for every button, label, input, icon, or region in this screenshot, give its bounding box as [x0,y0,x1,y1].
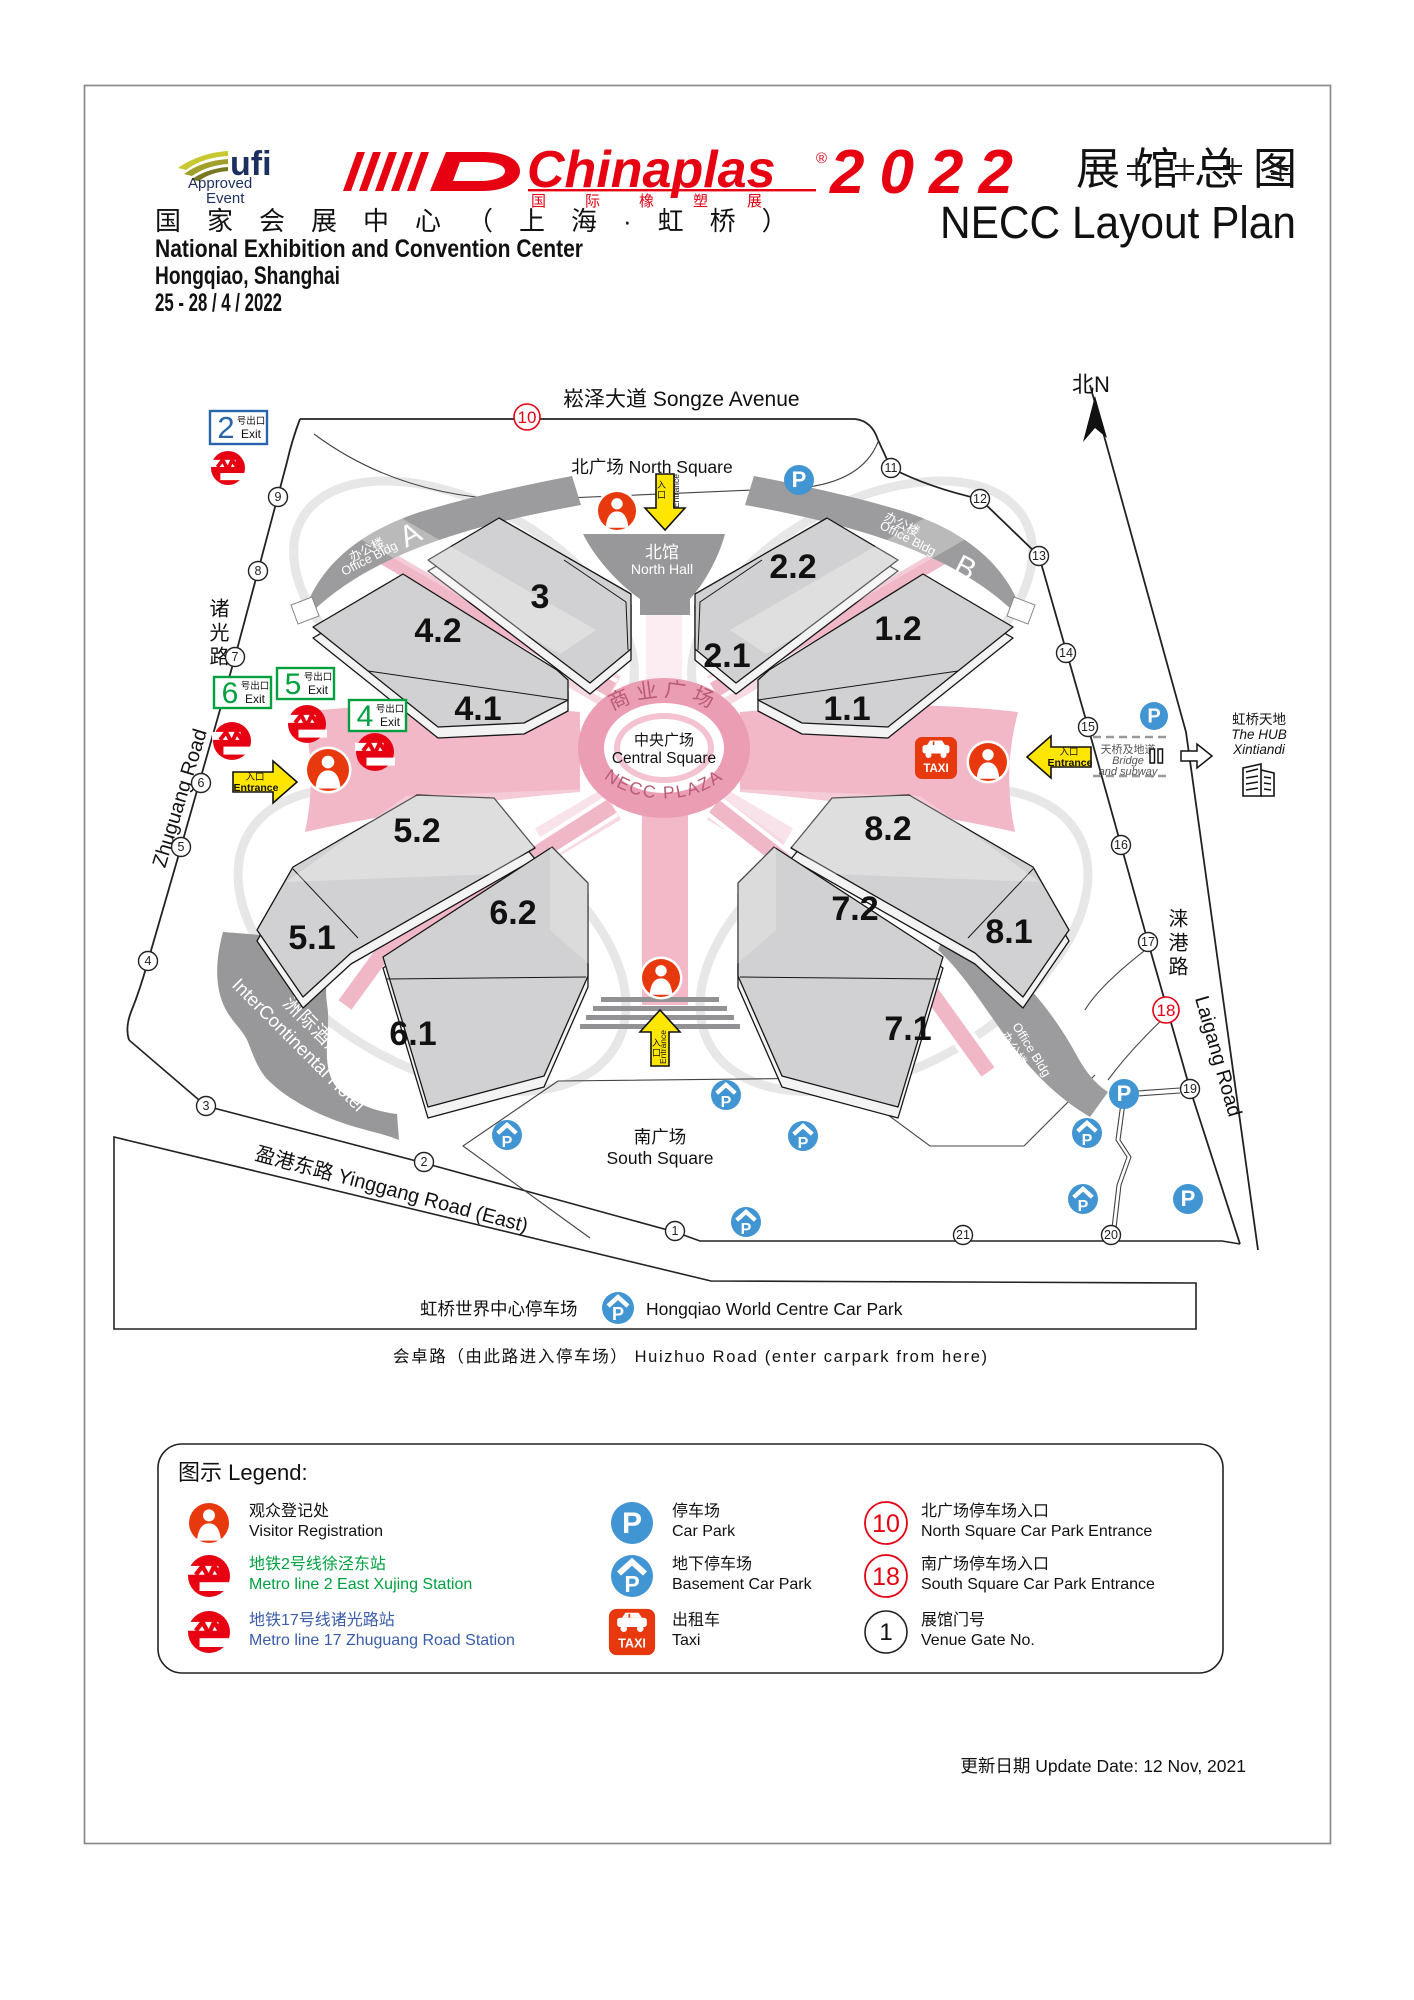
svg-text:4: 4 [145,954,152,968]
svg-text:涞港路: 涞港路 [1165,908,1188,980]
svg-text:Exit: Exit [380,715,401,729]
svg-text:P: P [792,467,807,492]
svg-text:地铁2号线徐泾东站: 地铁2号线徐泾东站 [249,1555,386,1573]
svg-text:5: 5 [178,840,185,854]
svg-text:P: P [612,1304,624,1324]
svg-text:13: 13 [1032,549,1046,563]
svg-text:Basement Car Park: Basement Car Park [672,1576,813,1593]
svg-text:P: P [624,1571,639,1597]
svg-text:入: 入 [657,480,666,490]
svg-text:虹桥世界中心停车场: 虹桥世界中心停车场 [420,1299,578,1319]
svg-text:Venue Gate No.: Venue Gate No. [921,1632,1035,1649]
svg-text:2.2: 2.2 [769,548,816,586]
svg-text:21: 21 [956,1228,970,1242]
svg-text:P: P [1181,1186,1196,1211]
svg-text:图示 Legend:: 图示 Legend: [178,1460,308,1485]
svg-text:6: 6 [198,776,205,790]
svg-text:Central Square: Central Square [612,750,716,767]
svg-text:14: 14 [1059,646,1073,660]
svg-text:Xintiandi: Xintiandi [1232,742,1286,757]
svg-text:地下停车场: 地下停车场 [672,1555,752,1573]
svg-text:北N: 北N [1072,372,1110,397]
svg-text:TAXI: TAXI [923,763,948,775]
svg-text:Event: Event [206,190,245,207]
svg-text:2.1: 2.1 [703,637,750,675]
svg-text:South Square Car Park Entrance: South Square Car Park Entrance [921,1576,1155,1593]
svg-text:号出口: 号出口 [237,415,266,427]
svg-text:NECC Layout Plan: NECC Layout Plan [940,197,1296,248]
svg-text:7: 7 [232,650,239,664]
svg-text:20: 20 [1104,1228,1118,1242]
svg-text:Metro line 17 Zhuguang Road St: Metro line 17 Zhuguang Road Station [249,1632,515,1649]
svg-text:Entrance: Entrance [671,474,681,508]
svg-text:®: ® [816,150,827,167]
svg-text:8.2: 8.2 [864,810,911,848]
svg-text:South Square: South Square [606,1148,713,1168]
svg-text:1: 1 [879,1619,892,1646]
svg-text:18: 18 [1157,1001,1176,1020]
svg-text:P: P [502,1134,513,1151]
svg-text:Exit: Exit [308,683,329,697]
svg-text:盈港东路 Yinggang Road (East): 盈港东路 Yinggang Road (East) [253,1142,531,1237]
svg-text:P: P [1147,706,1160,728]
svg-text:1.2: 1.2 [874,610,921,648]
svg-text:6.2: 6.2 [489,894,536,932]
svg-text:P: P [721,1094,732,1111]
svg-text:出租车: 出租车 [672,1611,720,1629]
svg-text:天桥及地道: 天桥及地道 [1101,742,1156,756]
svg-text:更新日期 Update Date: 12 Nov, 2021: 更新日期 Update Date: 12 Nov, 2021 [960,1756,1246,1776]
svg-text:19: 19 [1183,1082,1197,1096]
svg-text:Entrance: Entrance [1048,757,1093,769]
svg-text:6.1: 6.1 [389,1015,436,1053]
svg-text:中央广场: 中央广场 [634,732,694,749]
svg-text:Entrance: Entrance [658,1030,668,1064]
svg-text:P: P [1117,1081,1132,1106]
svg-text:North Hall: North Hall [631,561,693,577]
svg-text:4: 4 [357,700,374,733]
svg-text:National Exhibition and Conven: National Exhibition and Convention Cente… [155,235,583,263]
svg-text:Visitor Registration: Visitor Registration [249,1523,383,1540]
svg-text:P: P [1078,1198,1089,1215]
svg-text:5.2: 5.2 [393,812,440,850]
svg-text:15: 15 [1081,720,1095,734]
svg-text:3: 3 [531,578,550,616]
svg-text:展馆门号: 展馆门号 [921,1611,985,1629]
svg-text:国家会展中心（上海·虹桥）: 国家会展中心（上海·虹桥） [155,206,814,236]
svg-text:北广场停车场入口: 北广场停车场入口 [921,1502,1049,1520]
svg-text:南广场: 南广场 [634,1127,687,1147]
svg-text:口: 口 [657,490,666,500]
svg-text:号出口: 号出口 [304,671,333,683]
svg-text:5.1: 5.1 [288,919,335,957]
svg-text:Entrance: Entrance [234,782,279,794]
svg-text:虹桥天地: 虹桥天地 [1232,712,1286,727]
svg-text:10: 10 [872,1510,900,1538]
svg-text:北广场 North Square: 北广场 North Square [571,457,732,477]
svg-text:5: 5 [285,668,302,701]
svg-text:1.1: 1.1 [823,690,870,728]
svg-text:Hongqiao World Centre Car Park: Hongqiao World Centre Car Park [646,1299,903,1319]
svg-text:北馆: 北馆 [645,543,679,562]
svg-text:8.1: 8.1 [985,913,1032,951]
svg-text:The HUB: The HUB [1231,727,1287,742]
svg-text:North Square Car Park Entrance: North Square Car Park Entrance [921,1523,1152,1540]
svg-text:停车场: 停车场 [672,1502,720,1520]
svg-text:P: P [622,1507,642,1540]
svg-text:11: 11 [885,461,898,475]
svg-text:4.1: 4.1 [454,690,501,728]
svg-text:17: 17 [1141,935,1155,949]
svg-text:7.2: 7.2 [831,890,878,928]
svg-text:12: 12 [973,492,987,506]
svg-text:P: P [741,1221,752,1238]
svg-text:展馆总图: 展馆总图 [1076,145,1312,194]
svg-text:P: P [1082,1132,1093,1149]
svg-text:Car Park: Car Park [672,1523,736,1540]
svg-text:Taxi: Taxi [672,1632,700,1649]
svg-text:观众登记处: 观众登记处 [249,1502,329,1520]
svg-text:地铁17号线诸光路站: 地铁17号线诸光路站 [249,1611,395,1629]
svg-text:P: P [798,1135,809,1152]
svg-text:崧泽大道 Songze Avenue: 崧泽大道 Songze Avenue [563,388,800,411]
svg-text:9: 9 [275,490,282,504]
svg-text:号出口: 号出口 [376,703,405,715]
svg-text:and subway: and subway [1099,766,1159,778]
svg-text:18: 18 [872,1563,900,1591]
svg-text:8: 8 [255,564,262,578]
svg-text:Hongqiao, Shanghai: Hongqiao, Shanghai [155,262,340,290]
svg-text:号出口: 号出口 [241,680,270,692]
svg-text:25 - 28 / 4 / 2022: 25 - 28 / 4 / 2022 [155,289,282,317]
svg-text:2: 2 [217,410,234,445]
svg-text:6: 6 [222,677,239,710]
svg-text:TAXI: TAXI [618,1636,646,1650]
svg-text:Laigang Road: Laigang Road [1190,993,1245,1119]
svg-text:1: 1 [672,1224,679,1238]
svg-text:南广场停车场入口: 南广场停车场入口 [921,1555,1049,1573]
svg-text:3: 3 [203,1099,210,1113]
svg-text:2: 2 [421,1155,428,1169]
svg-text:会卓路（由此路进入停车场） Huizhuo Road (e: 会卓路（由此路进入停车场） Huizhuo Road (enter carpar… [393,1347,987,1366]
svg-text:Exit: Exit [241,427,262,441]
svg-text:Metro line 2 East Xujing Stati: Metro line 2 East Xujing Station [249,1576,472,1593]
svg-text:7.1: 7.1 [884,1010,931,1048]
svg-text:4.2: 4.2 [414,612,461,650]
svg-text:10: 10 [518,408,537,427]
svg-text:16: 16 [1114,838,1128,852]
svg-text:Exit: Exit [245,692,266,706]
